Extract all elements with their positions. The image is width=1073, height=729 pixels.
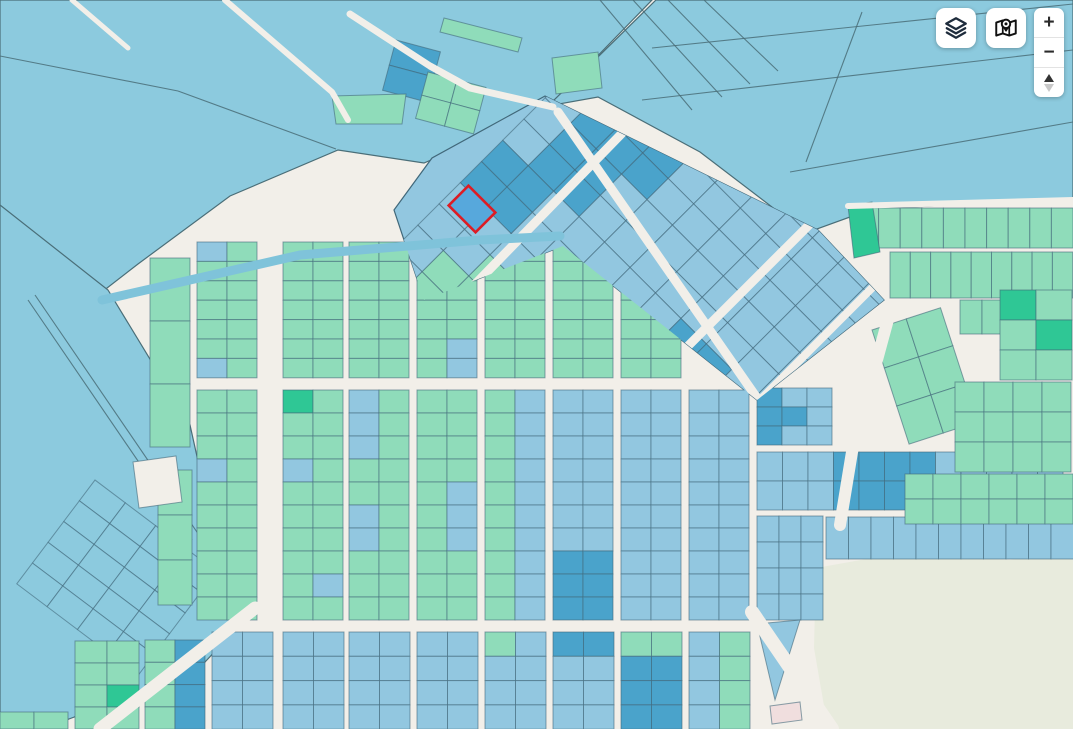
parcel[interactable] bbox=[283, 459, 313, 482]
parcel[interactable] bbox=[1013, 382, 1042, 412]
parcel[interactable] bbox=[689, 632, 720, 656]
parcel[interactable] bbox=[1036, 290, 1072, 320]
parcel[interactable] bbox=[621, 358, 651, 377]
parcel[interactable] bbox=[621, 528, 651, 551]
parcel[interactable] bbox=[197, 436, 227, 459]
parcel[interactable] bbox=[349, 436, 379, 459]
parcel[interactable] bbox=[652, 656, 683, 680]
region-park[interactable] bbox=[814, 549, 1073, 729]
parcel[interactable] bbox=[553, 261, 583, 280]
parcel[interactable] bbox=[349, 339, 379, 358]
parcel[interactable] bbox=[651, 339, 681, 358]
parcel[interactable] bbox=[485, 390, 515, 413]
parcel[interactable] bbox=[807, 407, 832, 426]
parcel[interactable] bbox=[984, 442, 1013, 472]
parcel[interactable] bbox=[313, 281, 343, 300]
parcel[interactable] bbox=[283, 261, 313, 280]
parcel[interactable] bbox=[801, 516, 823, 542]
parcel[interactable] bbox=[621, 413, 651, 436]
parcel[interactable] bbox=[485, 482, 515, 505]
parcel[interactable] bbox=[197, 459, 227, 482]
parcel[interactable] bbox=[197, 482, 227, 505]
parcel[interactable] bbox=[719, 551, 749, 574]
parcel[interactable] bbox=[314, 656, 345, 680]
parcel[interactable] bbox=[583, 551, 613, 574]
parcel[interactable] bbox=[283, 390, 313, 413]
parcel[interactable] bbox=[652, 681, 683, 705]
parcel[interactable] bbox=[349, 413, 379, 436]
parcel[interactable] bbox=[283, 436, 313, 459]
parcel[interactable] bbox=[583, 505, 613, 528]
parcel[interactable] bbox=[197, 339, 227, 358]
parcel[interactable] bbox=[313, 574, 343, 597]
parcel[interactable] bbox=[227, 339, 257, 358]
parcel[interactable] bbox=[890, 252, 910, 298]
parcel[interactable] bbox=[212, 656, 243, 680]
parcel[interactable] bbox=[689, 656, 720, 680]
parcel[interactable] bbox=[1000, 350, 1036, 380]
parcel[interactable] bbox=[34, 712, 68, 729]
parcel[interactable] bbox=[583, 300, 613, 319]
parcel[interactable] bbox=[955, 442, 984, 472]
parcel[interactable] bbox=[447, 436, 477, 459]
parcel[interactable] bbox=[379, 528, 409, 551]
parcel[interactable] bbox=[145, 707, 175, 729]
parcel[interactable] bbox=[448, 656, 479, 680]
parcel[interactable] bbox=[75, 641, 107, 663]
parcel[interactable] bbox=[779, 568, 801, 594]
parcel[interactable] bbox=[227, 505, 257, 528]
parcel[interactable] bbox=[801, 568, 823, 594]
parcel[interactable] bbox=[553, 390, 583, 413]
parcel[interactable] bbox=[689, 413, 719, 436]
parcel[interactable] bbox=[150, 321, 190, 384]
parcel[interactable] bbox=[516, 681, 547, 705]
parcel[interactable] bbox=[349, 656, 380, 680]
parcel[interactable] bbox=[485, 551, 515, 574]
map-canvas[interactable] bbox=[0, 0, 1073, 729]
parcel[interactable] bbox=[515, 390, 545, 413]
parcel[interactable] bbox=[447, 320, 477, 339]
parcel[interactable] bbox=[782, 407, 807, 426]
parcel[interactable] bbox=[283, 632, 314, 656]
parcel[interactable] bbox=[651, 597, 681, 620]
parcel[interactable] bbox=[158, 560, 192, 605]
parcel[interactable] bbox=[516, 705, 547, 729]
parcel[interactable] bbox=[719, 597, 749, 620]
parcel[interactable] bbox=[652, 705, 683, 729]
parcel[interactable] bbox=[447, 528, 477, 551]
parcel[interactable] bbox=[1045, 474, 1073, 499]
parcel[interactable] bbox=[379, 413, 409, 436]
parcel[interactable] bbox=[227, 242, 257, 261]
parcel[interactable] bbox=[313, 597, 343, 620]
parcel[interactable] bbox=[583, 597, 613, 620]
parcel[interactable] bbox=[1036, 320, 1072, 350]
parcel[interactable] bbox=[417, 705, 448, 729]
parcel[interactable] bbox=[719, 528, 749, 551]
parcel[interactable] bbox=[583, 339, 613, 358]
parcel[interactable] bbox=[417, 632, 448, 656]
parcel[interactable] bbox=[553, 358, 583, 377]
pitch-toggle-button[interactable] bbox=[1034, 68, 1064, 97]
parcel[interactable] bbox=[553, 281, 583, 300]
parcel[interactable] bbox=[651, 551, 681, 574]
parcel[interactable] bbox=[197, 551, 227, 574]
parcel[interactable] bbox=[145, 640, 175, 662]
parcel[interactable] bbox=[515, 261, 545, 280]
parcel[interactable] bbox=[197, 320, 227, 339]
parcel[interactable] bbox=[515, 320, 545, 339]
parcel[interactable] bbox=[719, 574, 749, 597]
parcel[interactable] bbox=[314, 705, 345, 729]
parcel[interactable] bbox=[1008, 208, 1030, 248]
parcel[interactable] bbox=[651, 390, 681, 413]
parcel[interactable] bbox=[313, 261, 343, 280]
parcel[interactable] bbox=[447, 358, 477, 377]
parcel[interactable] bbox=[485, 300, 515, 319]
parcel[interactable] bbox=[1045, 499, 1073, 524]
parcel[interactable] bbox=[955, 412, 984, 442]
parcel[interactable] bbox=[621, 505, 651, 528]
parcel[interactable] bbox=[283, 300, 313, 319]
parcel[interactable] bbox=[651, 413, 681, 436]
parcel[interactable] bbox=[283, 656, 314, 680]
parcel[interactable] bbox=[313, 482, 343, 505]
parcel[interactable] bbox=[757, 452, 783, 481]
parcel[interactable] bbox=[197, 505, 227, 528]
parcel[interactable] bbox=[447, 505, 477, 528]
parcel[interactable] bbox=[719, 482, 749, 505]
parcel[interactable] bbox=[943, 208, 965, 248]
parcel[interactable] bbox=[808, 452, 834, 481]
parcel[interactable] bbox=[783, 481, 809, 510]
parcel[interactable] bbox=[583, 482, 613, 505]
parcel[interactable] bbox=[417, 300, 447, 319]
parcel[interactable] bbox=[417, 482, 447, 505]
parcel[interactable] bbox=[283, 505, 313, 528]
parcel[interactable] bbox=[447, 339, 477, 358]
parcel[interactable] bbox=[689, 681, 720, 705]
parcel[interactable] bbox=[1013, 412, 1042, 442]
parcel[interactable] bbox=[553, 574, 583, 597]
parcel[interactable] bbox=[158, 515, 192, 560]
parcel[interactable] bbox=[349, 705, 380, 729]
parcel[interactable] bbox=[227, 459, 257, 482]
parcel[interactable] bbox=[349, 597, 379, 620]
parcel[interactable] bbox=[808, 481, 834, 510]
parcel[interactable] bbox=[553, 339, 583, 358]
parcel[interactable] bbox=[621, 482, 651, 505]
parcel[interactable] bbox=[720, 656, 751, 680]
parcel[interactable] bbox=[349, 528, 379, 551]
parcel[interactable] bbox=[448, 705, 479, 729]
parcel[interactable] bbox=[314, 632, 345, 656]
parcel[interactable] bbox=[283, 482, 313, 505]
parcel[interactable] bbox=[621, 597, 651, 620]
parcel[interactable] bbox=[313, 390, 343, 413]
parcel[interactable] bbox=[379, 574, 409, 597]
parcel[interactable] bbox=[417, 320, 447, 339]
parcel[interactable] bbox=[1000, 320, 1036, 350]
parcel[interactable] bbox=[227, 320, 257, 339]
parcel[interactable] bbox=[779, 516, 801, 542]
parcel[interactable] bbox=[583, 436, 613, 459]
parcel[interactable] bbox=[583, 574, 613, 597]
parcel[interactable] bbox=[859, 452, 885, 481]
parcel[interactable] bbox=[283, 551, 313, 574]
parcel[interactable] bbox=[783, 452, 809, 481]
parcel[interactable] bbox=[583, 281, 613, 300]
parcel[interactable] bbox=[757, 516, 779, 542]
parcel[interactable] bbox=[1036, 350, 1072, 380]
parcel[interactable] bbox=[801, 542, 823, 568]
parcel[interactable] bbox=[75, 663, 107, 685]
parcel[interactable] bbox=[379, 261, 409, 280]
parcel[interactable] bbox=[689, 390, 719, 413]
parcel[interactable] bbox=[0, 712, 34, 729]
parcel[interactable] bbox=[283, 320, 313, 339]
parcel[interactable] bbox=[349, 281, 379, 300]
parcel[interactable] bbox=[515, 339, 545, 358]
parcel[interactable] bbox=[227, 281, 257, 300]
parcel[interactable] bbox=[621, 320, 651, 339]
parcel[interactable] bbox=[651, 528, 681, 551]
parcel[interactable] bbox=[621, 681, 652, 705]
parcel[interactable] bbox=[349, 505, 379, 528]
parcel[interactable] bbox=[1017, 474, 1045, 499]
parcel[interactable] bbox=[779, 542, 801, 568]
parcel[interactable] bbox=[212, 705, 243, 729]
parcel[interactable] bbox=[955, 382, 984, 412]
parcel-pink-building[interactable] bbox=[770, 702, 802, 724]
parcel[interactable] bbox=[515, 528, 545, 551]
parcel[interactable] bbox=[227, 300, 257, 319]
parcel[interactable] bbox=[197, 281, 227, 300]
parcel-green-band-c[interactable] bbox=[552, 52, 602, 94]
parcel[interactable] bbox=[417, 413, 447, 436]
parcel[interactable] bbox=[651, 358, 681, 377]
parcel[interactable] bbox=[651, 459, 681, 482]
parcel[interactable] bbox=[379, 358, 409, 377]
parcel[interactable] bbox=[417, 358, 447, 377]
parcel[interactable] bbox=[227, 390, 257, 413]
parcel[interactable] bbox=[448, 632, 479, 656]
parcel[interactable] bbox=[313, 339, 343, 358]
parcel[interactable] bbox=[417, 505, 447, 528]
parcel[interactable] bbox=[417, 656, 448, 680]
parcel[interactable] bbox=[651, 574, 681, 597]
parcel[interactable] bbox=[1051, 208, 1073, 248]
parcel[interactable] bbox=[380, 681, 411, 705]
parcel[interactable] bbox=[485, 413, 515, 436]
parcel[interactable] bbox=[349, 459, 379, 482]
parcel[interactable] bbox=[621, 632, 652, 656]
parcel[interactable] bbox=[197, 242, 227, 261]
parcel-courtyard[interactable] bbox=[133, 456, 182, 508]
parcel[interactable] bbox=[485, 681, 516, 705]
parcel[interactable] bbox=[553, 656, 584, 680]
parcel[interactable] bbox=[553, 436, 583, 459]
parcel[interactable] bbox=[107, 663, 139, 685]
parcel[interactable] bbox=[417, 339, 447, 358]
parcel[interactable] bbox=[651, 505, 681, 528]
parcel[interactable] bbox=[314, 681, 345, 705]
parcel[interactable] bbox=[584, 656, 615, 680]
parcel[interactable] bbox=[757, 426, 782, 445]
parcel[interactable] bbox=[485, 705, 516, 729]
parcel[interactable] bbox=[553, 482, 583, 505]
parcel[interactable] bbox=[197, 390, 227, 413]
parcel[interactable] bbox=[313, 358, 343, 377]
parcel[interactable] bbox=[379, 300, 409, 319]
parcel[interactable] bbox=[197, 413, 227, 436]
parcel[interactable] bbox=[719, 459, 749, 482]
parcel[interactable] bbox=[515, 281, 545, 300]
parcel[interactable] bbox=[689, 436, 719, 459]
parcel[interactable] bbox=[515, 300, 545, 319]
parcel[interactable] bbox=[553, 551, 583, 574]
parcel[interactable] bbox=[689, 459, 719, 482]
parcel[interactable] bbox=[689, 528, 719, 551]
parcel[interactable] bbox=[349, 632, 380, 656]
parcel[interactable] bbox=[349, 390, 379, 413]
parcel[interactable] bbox=[515, 413, 545, 436]
parcel[interactable] bbox=[689, 705, 720, 729]
parcel[interactable] bbox=[720, 632, 751, 656]
parcel[interactable] bbox=[380, 705, 411, 729]
parcel[interactable] bbox=[212, 681, 243, 705]
parcel[interactable] bbox=[801, 594, 823, 620]
parcel[interactable] bbox=[283, 358, 313, 377]
parcel[interactable] bbox=[485, 597, 515, 620]
parcel[interactable] bbox=[720, 681, 751, 705]
parcel[interactable] bbox=[987, 208, 1009, 248]
parcel[interactable] bbox=[779, 594, 801, 620]
parcel[interactable] bbox=[313, 551, 343, 574]
parcel[interactable] bbox=[621, 705, 652, 729]
parcel[interactable] bbox=[971, 252, 991, 298]
parcel[interactable] bbox=[1042, 412, 1071, 442]
parcel[interactable] bbox=[485, 436, 515, 459]
parcel[interactable] bbox=[621, 551, 651, 574]
parcel[interactable] bbox=[379, 320, 409, 339]
parcel[interactable] bbox=[515, 482, 545, 505]
parcel[interactable] bbox=[584, 632, 615, 656]
parcel[interactable] bbox=[485, 632, 516, 656]
parcel[interactable] bbox=[227, 436, 257, 459]
parcel[interactable] bbox=[553, 320, 583, 339]
parcel[interactable] bbox=[1042, 382, 1071, 412]
parcel[interactable] bbox=[447, 551, 477, 574]
parcel[interactable] bbox=[719, 436, 749, 459]
parcel[interactable] bbox=[485, 459, 515, 482]
parcel[interactable] bbox=[283, 705, 314, 729]
parcel[interactable] bbox=[621, 656, 652, 680]
basemap-button[interactable] bbox=[986, 8, 1026, 48]
parcel[interactable] bbox=[417, 436, 447, 459]
parcel[interactable] bbox=[515, 436, 545, 459]
parcel[interactable] bbox=[1042, 442, 1071, 472]
parcel[interactable] bbox=[719, 413, 749, 436]
parcel[interactable] bbox=[417, 681, 448, 705]
parcel[interactable] bbox=[583, 413, 613, 436]
parcel[interactable] bbox=[447, 413, 477, 436]
parcel[interactable] bbox=[553, 632, 584, 656]
parcel[interactable] bbox=[984, 382, 1013, 412]
parcel[interactable] bbox=[652, 632, 683, 656]
parcel[interactable] bbox=[417, 390, 447, 413]
parcel[interactable] bbox=[313, 320, 343, 339]
parcel[interactable] bbox=[922, 208, 944, 248]
parcel[interactable] bbox=[689, 551, 719, 574]
parcel[interactable] bbox=[584, 705, 615, 729]
parcel[interactable] bbox=[1017, 499, 1045, 524]
parcel[interactable] bbox=[584, 681, 615, 705]
parcel[interactable] bbox=[871, 517, 894, 559]
parcel[interactable] bbox=[485, 656, 516, 680]
parcel[interactable] bbox=[905, 474, 933, 499]
parcel[interactable] bbox=[313, 528, 343, 551]
parcel[interactable] bbox=[621, 436, 651, 459]
parcel[interactable] bbox=[349, 320, 379, 339]
parcel[interactable] bbox=[313, 436, 343, 459]
parcel[interactable] bbox=[283, 413, 313, 436]
parcel[interactable] bbox=[349, 300, 379, 319]
parcel[interactable] bbox=[719, 390, 749, 413]
parcel[interactable] bbox=[379, 390, 409, 413]
parcel[interactable] bbox=[859, 481, 885, 510]
parcel[interactable] bbox=[515, 358, 545, 377]
parcel[interactable] bbox=[961, 474, 989, 499]
parcel[interactable] bbox=[553, 528, 583, 551]
parcel[interactable] bbox=[485, 320, 515, 339]
parcel[interactable] bbox=[197, 358, 227, 377]
parcel[interactable] bbox=[283, 339, 313, 358]
parcel[interactable] bbox=[485, 358, 515, 377]
parcel[interactable] bbox=[984, 412, 1013, 442]
parcel[interactable] bbox=[243, 705, 274, 729]
parcel[interactable] bbox=[379, 339, 409, 358]
parcel[interactable] bbox=[349, 551, 379, 574]
parcel[interactable] bbox=[197, 528, 227, 551]
parcel[interactable] bbox=[515, 551, 545, 574]
parcel[interactable] bbox=[349, 681, 380, 705]
parcel[interactable] bbox=[283, 681, 314, 705]
parcel[interactable] bbox=[719, 505, 749, 528]
parcel[interactable] bbox=[447, 597, 477, 620]
parcel[interactable] bbox=[175, 707, 205, 729]
parcel[interactable] bbox=[757, 568, 779, 594]
parcel[interactable] bbox=[313, 413, 343, 436]
parcel[interactable] bbox=[931, 252, 951, 298]
parcel[interactable] bbox=[553, 505, 583, 528]
parcel[interactable] bbox=[485, 339, 515, 358]
parcel[interactable] bbox=[349, 261, 379, 280]
parcel[interactable] bbox=[515, 597, 545, 620]
parcel[interactable] bbox=[757, 407, 782, 426]
parcel[interactable] bbox=[553, 413, 583, 436]
parcel[interactable] bbox=[447, 300, 477, 319]
parcel[interactable] bbox=[243, 632, 274, 656]
parcel[interactable] bbox=[553, 597, 583, 620]
parcel[interactable] bbox=[379, 436, 409, 459]
parcel[interactable] bbox=[515, 505, 545, 528]
parcel[interactable] bbox=[757, 481, 783, 510]
parcel[interactable] bbox=[879, 208, 901, 248]
parcel[interactable] bbox=[447, 390, 477, 413]
parcel[interactable] bbox=[689, 505, 719, 528]
